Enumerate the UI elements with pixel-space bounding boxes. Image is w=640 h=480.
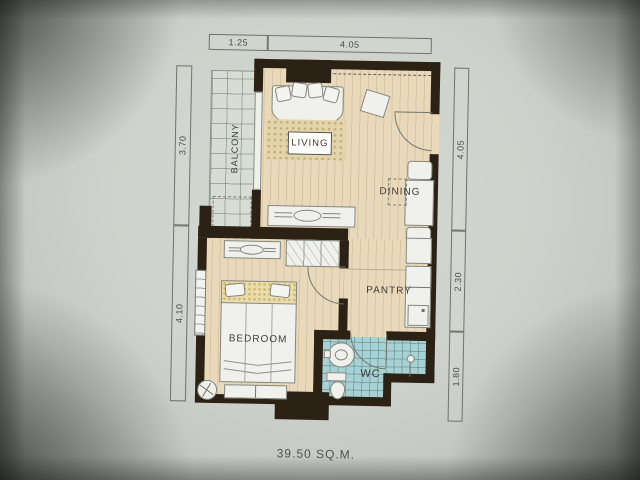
sofa-pillow <box>275 85 293 103</box>
dimension-value: 1.25 <box>228 37 248 47</box>
room-label-dining: DINING <box>371 185 429 199</box>
dresser-tv-icon <box>240 244 264 254</box>
dresser-wing <box>264 248 276 252</box>
dresser-wing <box>229 247 241 251</box>
bed-pillow <box>225 283 246 298</box>
room-label-pantry: PANTRY <box>357 284 421 298</box>
sink-tap <box>324 350 331 358</box>
room-label-bedroom: BEDROOM <box>222 332 294 346</box>
dimension-top-right: 4.05 <box>268 35 432 54</box>
dining-chair-top <box>407 161 432 180</box>
dimension-right-upper: 4.05 <box>451 68 469 231</box>
bed-pillow <box>269 283 290 298</box>
washing-machine-dot <box>422 309 425 312</box>
sink-basin <box>335 349 348 360</box>
dimension-top-left: 1.25 <box>209 34 268 51</box>
ac-unit-dashed <box>212 196 252 228</box>
toilet-tank <box>326 372 346 381</box>
wall-balcony-column <box>199 206 212 238</box>
floor-plan: 1.25 4.05 3.70 4.10 4.05 2.30 1.80 <box>0 0 640 480</box>
bedroom-window <box>194 270 206 336</box>
floor-plan-photo: 1.25 4.05 3.70 4.10 4.05 2.30 1.80 <box>0 0 640 480</box>
wall-wc-top-right <box>386 331 435 341</box>
wardrobe <box>285 239 340 267</box>
dimension-value: 4.05 <box>455 139 465 159</box>
tv-wing <box>274 212 292 217</box>
wall-living-left-top <box>254 59 264 92</box>
dimension-value: 3.70 <box>178 135 188 155</box>
dimension-left-upper: 3.70 <box>173 65 192 225</box>
room-label-wc: WC <box>353 367 387 381</box>
dimension-value: 4.05 <box>340 39 360 49</box>
dimension-right-middle: 2.30 <box>449 231 466 332</box>
sofa-pillow <box>291 81 308 98</box>
wall-right-upper <box>430 62 440 114</box>
pantry-cabinet <box>406 238 432 264</box>
wall-wardrobe-side <box>339 240 349 268</box>
dimension-left-lower: 4.10 <box>170 225 189 401</box>
tv-icon <box>293 209 321 222</box>
dimension-value: 2.30 <box>453 271 463 291</box>
room-label-balcony: BALCONY <box>228 108 242 188</box>
tv-wing <box>322 213 340 218</box>
room-label-living: LIVING <box>288 131 332 155</box>
dimension-value: 4.10 <box>174 303 184 323</box>
total-area-label: 39.50 SQ.M. <box>236 445 396 462</box>
sofa-pillow <box>307 82 324 99</box>
washing-machine <box>407 305 428 326</box>
wall-bedroom-left-upper <box>197 238 207 272</box>
wall-column-top <box>286 59 331 83</box>
dimension-value: 1.80 <box>451 367 461 387</box>
dimension-right-lower: 1.80 <box>448 331 465 421</box>
